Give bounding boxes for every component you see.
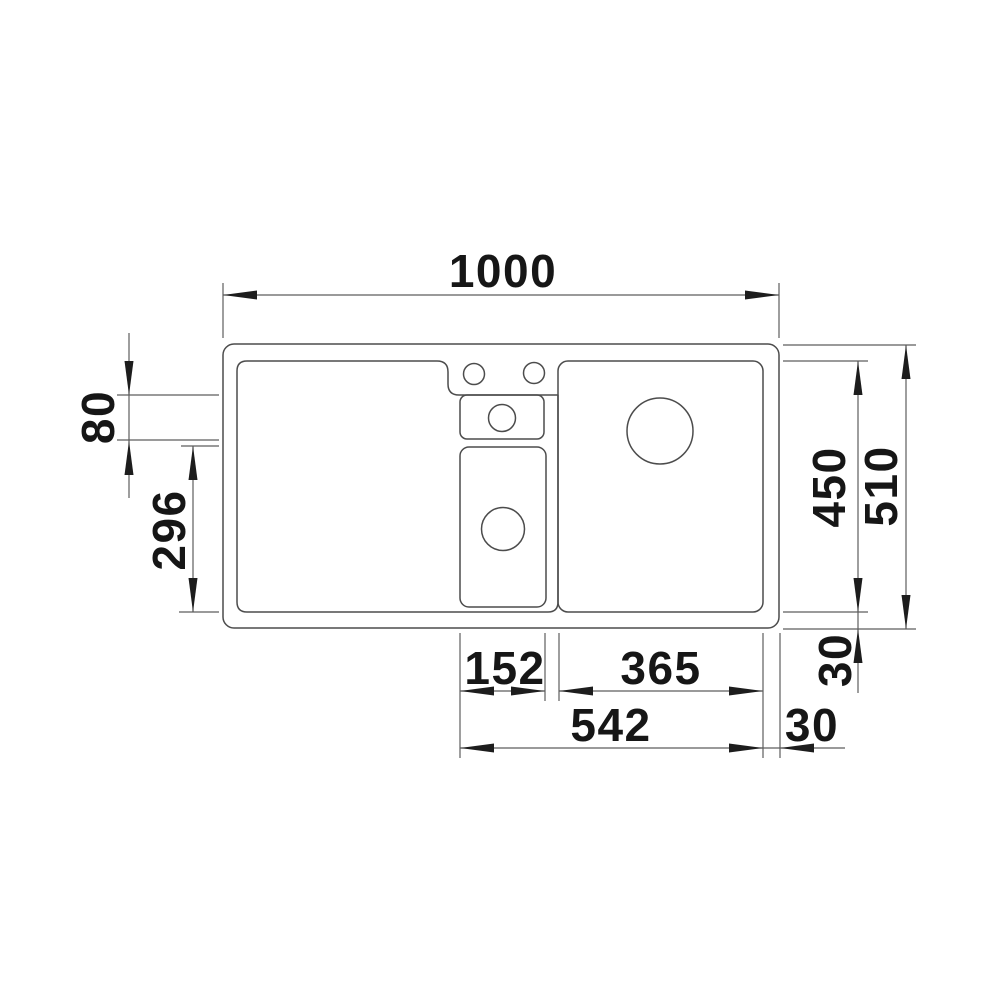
arrowhead-left [223, 291, 257, 300]
arrowhead-down [854, 578, 863, 612]
sink-technical-drawing: 1000 80 296 450 [0, 0, 992, 992]
arrowhead-right [729, 687, 763, 696]
tap-hole-right [524, 363, 545, 384]
drawing-canvas: 1000 80 296 450 [0, 0, 992, 992]
arrowhead-up [125, 441, 134, 475]
sink-outer-edge [223, 344, 779, 628]
dimension-bottom-margin: 30 [809, 612, 863, 693]
sink-outline-group [223, 344, 779, 628]
dimension-half-bowl-width: 152 [460, 633, 546, 701]
dim-label-overall-depth: 510 [855, 445, 907, 526]
half-bowl-drain-hole [482, 508, 525, 551]
dim-label-overall-width: 1000 [449, 245, 557, 297]
arrowhead-down [902, 595, 911, 629]
dimension-overall-width: 1000 [223, 245, 779, 338]
arrowhead-down [189, 578, 198, 612]
dim-label-bowl-depth: 450 [803, 446, 855, 527]
arrowhead-up [902, 345, 911, 379]
dim-label-bottom-margin: 30 [809, 633, 861, 687]
half-bowl-outline [460, 447, 546, 607]
arrowhead-up [854, 361, 863, 395]
dimension-main-bowl-width: 365 [559, 633, 763, 701]
arrowhead-right [745, 291, 779, 300]
dim-label-ledge-depth: 80 [72, 390, 124, 444]
arrowhead-left [460, 744, 494, 753]
arrowhead-left [559, 687, 593, 696]
arrowhead-up [189, 446, 198, 480]
faucet-ledge-outline [460, 395, 544, 439]
sink-recess-outline [237, 361, 558, 612]
dim-label-half-bowl-width: 152 [464, 642, 545, 694]
dimension-ledge-depth: 80 [72, 333, 219, 498]
dim-label-main-bowl-width: 365 [620, 642, 701, 694]
dim-label-half-bowl-depth: 296 [143, 489, 195, 570]
dim-label-right-margin: 30 [785, 699, 839, 751]
dimension-half-bowl-depth: 296 [143, 446, 219, 612]
dim-label-bowl-span: 542 [570, 699, 651, 751]
main-bowl-drain-hole [627, 398, 693, 464]
tap-hole-left [464, 364, 485, 385]
ledge-tap-hole [489, 405, 516, 432]
arrowhead-right [729, 744, 763, 753]
arrowhead-down [125, 361, 134, 395]
